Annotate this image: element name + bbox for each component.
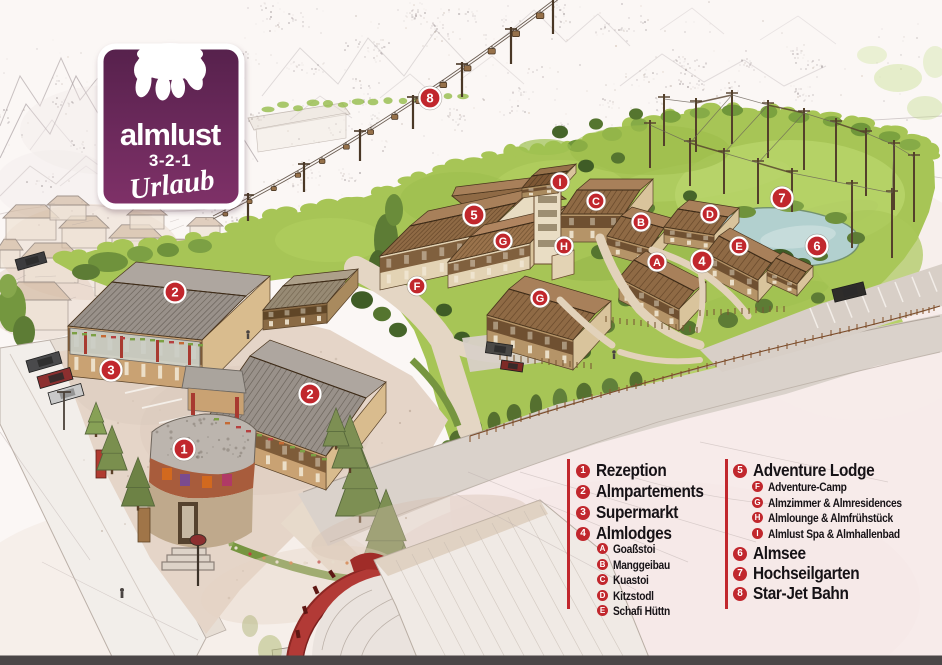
svg-text:4: 4 — [698, 254, 706, 269]
svg-text:G: G — [536, 293, 545, 305]
svg-text:D: D — [706, 209, 714, 221]
svg-text:C: C — [592, 196, 600, 208]
svg-text:B: B — [637, 217, 645, 229]
svg-text:5: 5 — [470, 208, 477, 223]
svg-text:F: F — [414, 281, 421, 293]
svg-text:8: 8 — [426, 91, 433, 106]
svg-text:2: 2 — [306, 387, 313, 402]
svg-text:2: 2 — [171, 285, 178, 300]
svg-text:almlust: almlust — [120, 117, 221, 152]
svg-text:I: I — [558, 177, 561, 189]
svg-text:A: A — [653, 257, 661, 269]
svg-text:6: 6 — [813, 239, 820, 254]
svg-text:3: 3 — [107, 363, 114, 378]
svg-text:E: E — [735, 241, 742, 253]
svg-text:1: 1 — [180, 442, 187, 457]
svg-text:7: 7 — [778, 191, 785, 206]
svg-text:H: H — [560, 241, 568, 253]
svg-text:G: G — [499, 236, 508, 248]
